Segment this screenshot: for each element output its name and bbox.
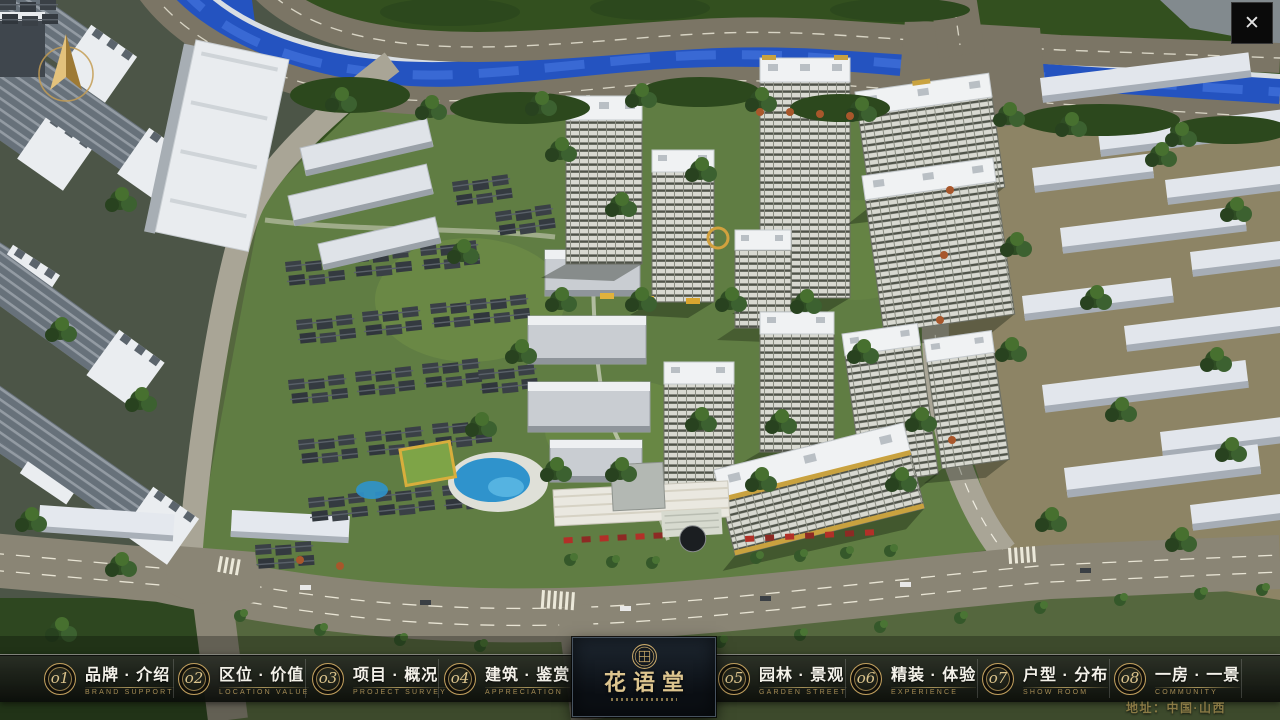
nav-number: o2 (185, 671, 204, 686)
nav-title: 精装 · 体验 (891, 661, 976, 685)
nav-subtitle: LOCATION VALUE (219, 689, 309, 696)
nav-number: o8 (1121, 671, 1140, 686)
nav-number-badge: o1 (44, 663, 76, 695)
nav-subtitle: EXPERIENCE (891, 689, 976, 696)
seal-emblem-icon (631, 643, 658, 670)
nav-number-badge: o8 (1114, 663, 1146, 695)
nav-subtitle: PROJECT SURVEY (353, 689, 447, 696)
nav-number-badge: o2 (178, 663, 210, 695)
nav-divider (977, 659, 978, 698)
nav-rule (1023, 687, 1108, 688)
nav-number-badge: o3 (312, 663, 344, 695)
nav-title: 建筑 · 鉴赏 (485, 661, 570, 685)
nav-item-location-value[interactable]: o2 区位 · 价值LOCATION VALUE (178, 655, 309, 702)
nav-subtitle: BRAND SUPPORT (85, 689, 174, 696)
nav-item-floorplans[interactable]: o7 户型 · 分布SHOW ROOM (982, 655, 1108, 702)
nav-title: 一房 · 一景 (1155, 661, 1240, 685)
nav-number-badge: o7 (982, 663, 1014, 695)
nav-subtitle: GARDEN STREET (759, 689, 847, 696)
nav-title: 项目 · 概况 (353, 661, 447, 685)
nav-subtitle: SHOW ROOM (1023, 689, 1108, 696)
masterplan-render[interactable] (0, 0, 1280, 720)
nav-item-interior-experience[interactable]: o6 精装 · 体验EXPERIENCE (850, 655, 976, 702)
nav-rule (891, 687, 976, 688)
nav-number: o1 (51, 671, 70, 686)
nav-number: o7 (989, 671, 1008, 686)
nav-subtitle: APPRECIATION (485, 689, 570, 696)
nav-divider (1109, 659, 1110, 698)
nav-rule (485, 687, 570, 688)
project-address: 地址：中国·山西 (1126, 699, 1226, 716)
project-tagline-rule (611, 698, 677, 701)
nav-item-project-survey[interactable]: o3 项目 · 概况PROJECT SURVEY (312, 655, 447, 702)
compass-north-icon (30, 24, 102, 110)
nav-number-badge: o6 (850, 663, 882, 695)
nav-rule (85, 687, 174, 688)
nav-divider (1241, 659, 1242, 698)
nav-item-one-room-one-view[interactable]: o8 一房 · 一景COMMUNITY (1114, 655, 1240, 702)
nav-number-badge: o5 (718, 663, 750, 695)
nav-item-brand-intro[interactable]: o1 品牌 · 介绍BRAND SUPPORT (44, 655, 174, 702)
nav-title: 园林 · 景观 (759, 661, 847, 685)
nav-title: 户型 · 分布 (1023, 661, 1108, 685)
close-icon: ✕ (1244, 12, 1260, 35)
nav-number: o5 (725, 671, 744, 686)
nav-item-architecture[interactable]: o4 建筑 · 鉴赏APPRECIATION (444, 655, 570, 702)
nav-title: 品牌 · 介绍 (85, 661, 174, 685)
nav-rule (1155, 687, 1240, 688)
sales-presentation-app: ✕ o1 品牌 · 介绍BRAND SUPPORT o2 区位 · 价值LOCA… (0, 0, 1280, 720)
nav-title: 区位 · 价值 (219, 661, 309, 685)
nav-rule (353, 687, 447, 688)
nav-rule (759, 687, 847, 688)
project-logo-panel[interactable]: 花语堂 (572, 637, 716, 717)
nav-number: o6 (857, 671, 876, 686)
nav-rule (219, 687, 309, 688)
nav-number: o3 (319, 671, 338, 686)
nav-item-garden-landscape[interactable]: o5 园林 · 景观GARDEN STREET (718, 655, 847, 702)
nav-number: o4 (451, 671, 470, 686)
nav-subtitle: COMMUNITY (1155, 689, 1240, 696)
project-name: 花语堂 (597, 671, 691, 695)
close-button[interactable]: ✕ (1231, 2, 1273, 44)
nav-number-badge: o4 (444, 663, 476, 695)
